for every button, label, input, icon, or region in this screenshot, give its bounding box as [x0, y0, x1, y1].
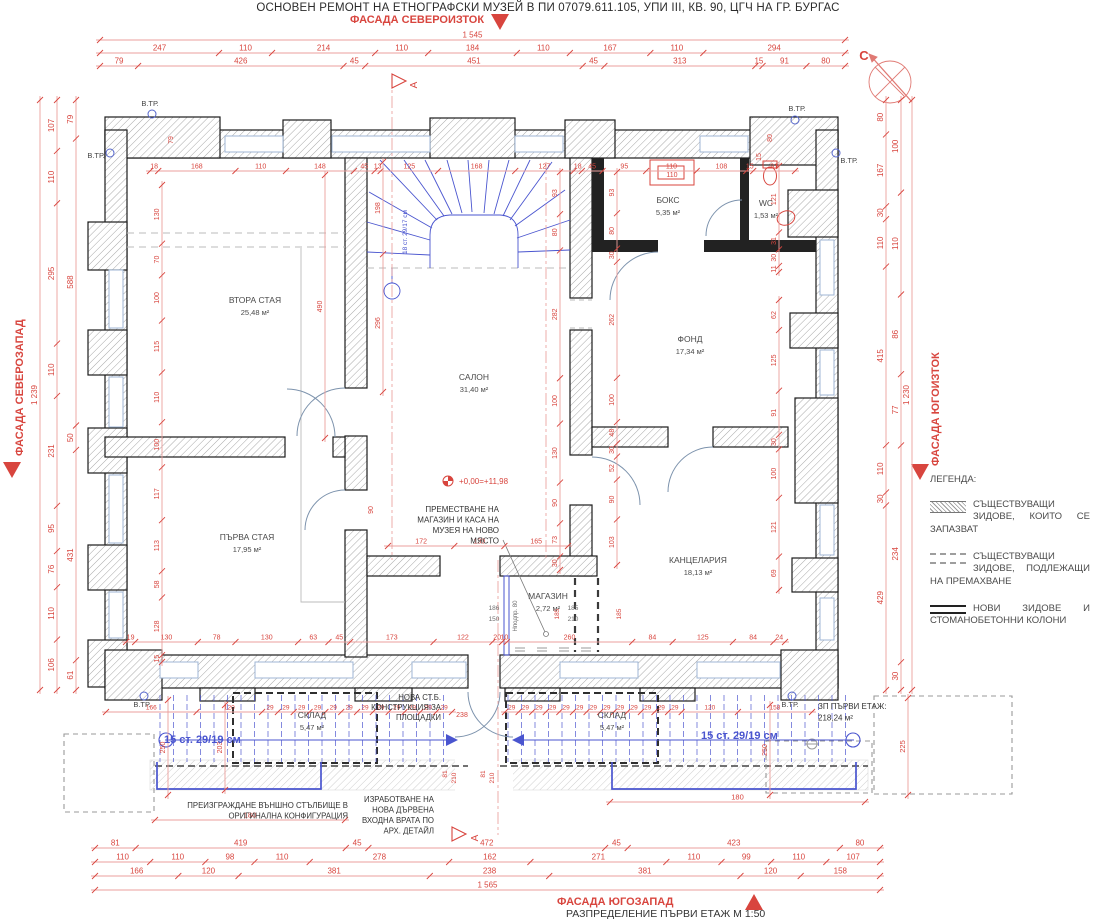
- dimension-label: 84: [749, 635, 757, 642]
- dimension-label: 278: [373, 853, 387, 862]
- dimension-label: 29: [563, 705, 571, 712]
- dimension-label: 120: [202, 867, 216, 876]
- room-labels: ВТОРА СТАЯ25,48 м²САЛОН31,40 м²ФОНД17,34…: [220, 195, 779, 732]
- dimension-label: 24: [775, 635, 783, 642]
- dimension-label: 381: [638, 867, 652, 876]
- vtr-label: В.ТР.: [87, 151, 104, 160]
- dimension-label: 52: [609, 464, 616, 472]
- dimension-label: 29: [671, 705, 679, 712]
- dimension-label: 296: [375, 317, 382, 329]
- dimension-label: 30: [891, 671, 900, 680]
- dimension-label: 15: [746, 164, 754, 171]
- dimension-label: 168: [471, 164, 483, 171]
- existing-walls: [88, 117, 838, 701]
- plan-label: А: [409, 81, 420, 88]
- annotation-text: ИЗРАБОТВАНЕ НАНОВА ДЪРВЕНАВХОДНА ВРАТА П…: [362, 795, 435, 836]
- dimension-label: 30: [609, 446, 616, 454]
- plan-label: А: [470, 834, 481, 841]
- plan-label: 185: [554, 608, 561, 619]
- new-walls: [592, 158, 816, 252]
- dimension-label: 247: [153, 44, 167, 53]
- dimension-label: 110: [154, 392, 161, 403]
- dimension-label: 29: [508, 705, 516, 712]
- vtr-label: В.ТР.: [141, 99, 158, 108]
- dimension-label: 472: [480, 839, 494, 848]
- dimension-label: 110: [47, 363, 56, 376]
- dimension-label: 29: [631, 705, 639, 712]
- dimension-label: 128: [154, 620, 161, 632]
- dimension-label: 29: [346, 705, 354, 712]
- annotation-text: ЗП ПЪРВИ ЕТАЖ:218,24 м²: [818, 702, 886, 723]
- dimension-label: 86: [891, 329, 900, 338]
- dimension-label: 451: [467, 57, 481, 66]
- dimension-label: 93: [552, 189, 559, 197]
- dimension-label: 110: [666, 164, 677, 171]
- dimension-label: 110: [276, 853, 289, 862]
- plan-label: 81: [442, 770, 449, 778]
- dimension-label: 130: [552, 447, 559, 459]
- dimension-label: 110: [116, 853, 129, 862]
- room-area: 25,48 м²: [241, 308, 270, 317]
- dimension-label: 168: [191, 164, 203, 171]
- dimension-label: 30: [771, 438, 778, 446]
- dimension-label: 125: [697, 635, 709, 642]
- dimension-label: 70: [154, 256, 161, 264]
- dimension-label: 90: [552, 499, 559, 507]
- dimension-label: 29: [361, 705, 369, 712]
- dimension-label: 31: [771, 237, 778, 245]
- dimension-label: 91: [780, 57, 789, 66]
- dimension-label: 107: [846, 853, 860, 862]
- dimension-label: 69: [771, 569, 778, 577]
- dimension-label: 95: [47, 523, 56, 532]
- room-area: 31,40 м²: [460, 385, 489, 394]
- vtr-label: В.ТР.: [781, 700, 798, 709]
- room-name: WC: [759, 198, 773, 208]
- dimension-label: 80: [855, 839, 864, 848]
- dimension-label: 431: [66, 548, 75, 562]
- dimension-label: 110: [239, 44, 252, 53]
- dimension-label: 100: [154, 292, 161, 304]
- dimension-label: 166: [130, 867, 144, 876]
- leader-line: [503, 540, 549, 637]
- annotation-text: ПРЕМЕСТВАНЕ НАМАГАЗИН И КАСА НАМУЗЕЯ НА …: [417, 505, 499, 546]
- dimension-label: 214: [317, 44, 331, 53]
- floor-plan-drawing: 1 54524711021411018411016711029479426454…: [0, 0, 1096, 922]
- dimension-label: 100: [154, 439, 161, 451]
- dimension-label: 1 230: [902, 384, 911, 405]
- dimension-label: 282: [552, 308, 559, 320]
- room-name: ВТОРА СТАЯ: [229, 295, 281, 305]
- dimension-label: 172: [415, 539, 427, 546]
- dimension-label: 1 239: [30, 384, 39, 405]
- dimension-label: 45: [335, 635, 343, 642]
- dimension-label: 77: [891, 405, 900, 414]
- dimension-label: 84: [649, 635, 657, 642]
- dimension-label: 184: [466, 44, 480, 53]
- dimension-label: 58: [154, 580, 161, 588]
- dimension-label: 29: [282, 705, 290, 712]
- dimension-label: 110: [876, 236, 885, 249]
- dimension-label: 15: [154, 655, 161, 663]
- dimension-label: 30: [876, 208, 885, 217]
- vtr-label: В.ТР.: [788, 104, 805, 113]
- plan-label: С: [859, 48, 869, 63]
- dimension-label: 93: [609, 189, 616, 197]
- plan-label: 110: [666, 172, 677, 179]
- plan-label: 185: [616, 608, 623, 619]
- room-name: ФОНД: [678, 334, 703, 344]
- annotation-text: ПРЕИЗГРАЖДАНЕ ВЪНШНО СТЪЛБИЩЕ ВОРИГИНАЛН…: [187, 801, 348, 821]
- dimension-label: 80: [821, 57, 830, 66]
- room-name: ПЪРВА СТАЯ: [220, 532, 275, 542]
- dimension-label: 29: [266, 705, 274, 712]
- dimension-label: 29: [440, 705, 448, 712]
- windows: [109, 136, 834, 678]
- dimension-label: 167: [603, 44, 617, 53]
- dimension-label: 11: [771, 265, 778, 272]
- vtr-label: В.ТР.: [840, 156, 857, 165]
- dimension-label: 100: [552, 395, 559, 407]
- dimension-label: 110: [688, 853, 701, 862]
- dimension-label: 125: [403, 164, 415, 171]
- dimension-label: 79: [115, 57, 124, 66]
- dimension-label: 238: [483, 867, 497, 876]
- plan-label: 90: [368, 506, 375, 514]
- dimension-label: 1 545: [462, 31, 483, 40]
- dimension-label: 110: [395, 44, 408, 53]
- dimension-label: 262: [609, 314, 616, 326]
- room-area: 5,47 м²: [600, 723, 625, 732]
- dimension-label: 45: [350, 57, 359, 66]
- plan-label: 80: [767, 134, 774, 142]
- dimension-label: 45: [612, 839, 621, 848]
- dimension-label: 121: [771, 521, 778, 533]
- dimension-label: 120: [704, 705, 715, 712]
- dimension-label: 15: [754, 57, 763, 66]
- dimension-label: 108: [716, 164, 728, 171]
- dimension-label: 162: [483, 853, 497, 862]
- room-name: БОКС: [656, 195, 679, 205]
- dimension-label: 110: [670, 44, 683, 53]
- dimension-label: 130: [154, 208, 161, 220]
- dimension-label: 100: [891, 139, 900, 153]
- dimension-label: 80: [609, 227, 616, 235]
- plan-label: +0,00=+11,98: [459, 477, 509, 486]
- dimension-label: 50: [66, 433, 75, 442]
- dimension-label: 120: [764, 867, 778, 876]
- dimension-label: 106: [47, 658, 56, 672]
- room-area: 5,47 м²: [300, 723, 325, 732]
- dimension-label: 120: [224, 705, 235, 712]
- room-name: СКЛАД: [298, 710, 327, 720]
- dimension-label: 113: [154, 540, 161, 551]
- dimension-label: 110: [876, 462, 885, 475]
- dimension-label: 29: [535, 705, 543, 712]
- dimension-label: 63: [309, 635, 317, 642]
- dimension-label: 29: [330, 705, 338, 712]
- room-area: 18,13 м²: [684, 568, 713, 577]
- dimension-label: 48: [609, 429, 616, 437]
- dimension-label: 30: [771, 254, 778, 262]
- room-area: 5,35 м²: [656, 208, 681, 217]
- annotation-text: 15 ст. 29/19 см: [164, 734, 241, 746]
- dimension-label: 73: [552, 536, 559, 544]
- dimension-label: 165: [530, 539, 542, 546]
- dimension-label: 19: [127, 635, 135, 642]
- level-mark-icon: [443, 476, 453, 486]
- dimension-label: 80: [876, 112, 885, 121]
- dimension-label: 95: [620, 164, 628, 171]
- main-staircase: [367, 160, 570, 299]
- dimension-label: 180: [731, 793, 744, 802]
- dimension-label: 423: [727, 839, 741, 848]
- dimension-label: 29: [658, 705, 666, 712]
- dimension-label: 173: [386, 635, 398, 642]
- dimension-label: 18: [150, 164, 158, 171]
- north-compass-icon: [869, 54, 912, 103]
- dimension-label: 103: [609, 536, 616, 548]
- room-name: СКЛАД: [598, 710, 627, 720]
- dimension-label: 18: [574, 164, 582, 171]
- plan-label: Нподпр. 80: [513, 600, 519, 632]
- dimension-label: 271: [592, 853, 606, 862]
- dimension-label: 198: [375, 202, 382, 214]
- plan-label: 15: [756, 153, 763, 161]
- dimension-label: 99: [742, 853, 751, 862]
- dimension-label: 98: [225, 853, 234, 862]
- dimension-label: 110: [792, 853, 805, 862]
- dimension-label: 250: [762, 744, 769, 756]
- dimension-label: 30: [876, 494, 885, 503]
- dimension-label: 490: [317, 301, 324, 313]
- plan-label: 150: [489, 616, 500, 623]
- dimension-label: 100: [771, 468, 778, 480]
- dimension-label: 45: [588, 164, 596, 171]
- dimension-label: 117: [154, 488, 161, 499]
- room-name: МАГАЗИН: [528, 591, 568, 601]
- dimension-label: 294: [767, 44, 781, 53]
- room-name: КАНЦЕЛАРИЯ: [669, 555, 727, 565]
- dimension-label: 110: [255, 164, 266, 171]
- dimension-label: 381: [327, 867, 341, 876]
- dimension-label: 127: [539, 164, 551, 171]
- plan-label: 210: [489, 772, 496, 783]
- annotation-text: 18 ст. 29/17 см: [402, 210, 409, 254]
- dimension-label: 130: [261, 635, 273, 642]
- dimension-label: 313: [673, 57, 687, 66]
- dimension-label: 125: [771, 354, 778, 366]
- room-area: 1,53 м²: [754, 211, 779, 220]
- dimension-label: 415: [876, 349, 885, 363]
- dimension-label: 79: [66, 114, 75, 123]
- dimension-label: 588: [66, 275, 75, 289]
- dimension-label: 167: [876, 163, 885, 177]
- dimension-label: 231: [47, 444, 56, 458]
- dimension-label: 158: [770, 705, 781, 712]
- dimension-label: 90: [609, 496, 616, 504]
- dimension-label: 91: [771, 409, 778, 417]
- dimension-label: 107: [47, 118, 56, 132]
- plan-label: 238: [456, 712, 468, 719]
- dimension-label: 45: [353, 839, 362, 848]
- dimension-label: 29: [644, 705, 652, 712]
- plan-label: 186: [489, 605, 500, 612]
- dimension-label: 295: [47, 266, 56, 280]
- dimension-label: 91: [770, 164, 778, 171]
- dimension-label: 429: [876, 590, 885, 604]
- vtr-label: В.ТР.: [133, 700, 150, 709]
- dimension-label: 30: [552, 559, 559, 567]
- dimension-label: 426: [234, 57, 248, 66]
- dimension-label: 45: [360, 164, 368, 171]
- dimension-label: 29: [590, 705, 598, 712]
- dimension-label: 29: [576, 705, 584, 712]
- dimension-label: 29: [522, 705, 530, 712]
- dimension-label: 260: [564, 635, 576, 642]
- dimension-label: 234: [891, 547, 900, 561]
- dimension-label: 419: [234, 839, 248, 848]
- dimension-label: 110: [47, 606, 56, 619]
- dimension-label: 45: [589, 57, 598, 66]
- room-area: 17,95 м²: [233, 545, 262, 554]
- dimension-label: 81: [111, 839, 120, 848]
- plan-label: 81: [480, 770, 487, 778]
- shop-glazing: [504, 576, 509, 655]
- dimension-label: 80: [552, 228, 559, 236]
- dimension-label: 122: [457, 635, 469, 642]
- dimension-label: 62: [771, 311, 778, 319]
- dimension-label: 158: [834, 867, 848, 876]
- drawing-sheet: ОСНОВЕН РЕМОНТ НА ЕТНОГРАФСКИ МУЗЕЙ В ПИ…: [0, 0, 1096, 922]
- dimension-label: 110: [537, 44, 550, 53]
- plan-label: 210: [451, 772, 458, 783]
- dimension-label: 225: [898, 740, 907, 753]
- room-name: САЛОН: [459, 372, 489, 382]
- dimension-label: 115: [154, 341, 161, 352]
- dimension-label: 76: [47, 564, 56, 573]
- dimension-label: 10: [501, 635, 509, 642]
- dimension-label: 78: [213, 635, 221, 642]
- annotation-text: 15 ст. 29/19 см: [701, 730, 778, 742]
- dimension-label: 148: [314, 164, 326, 171]
- dimension-label: 30: [609, 251, 616, 259]
- dimension-label: 61: [66, 670, 75, 679]
- plan-label: 79: [168, 136, 175, 144]
- dimension-label: 29: [549, 705, 557, 712]
- dimension-label: 110: [891, 237, 900, 250]
- plan-label: 185: [568, 605, 579, 612]
- room-area: 17,34 м²: [676, 347, 705, 356]
- dimension-label: 110: [47, 170, 56, 183]
- dimension-label: 110: [171, 853, 184, 862]
- dimension-label: 100: [609, 394, 616, 406]
- plan-label: 210: [568, 616, 579, 623]
- dimension-label: 1 565: [477, 881, 498, 890]
